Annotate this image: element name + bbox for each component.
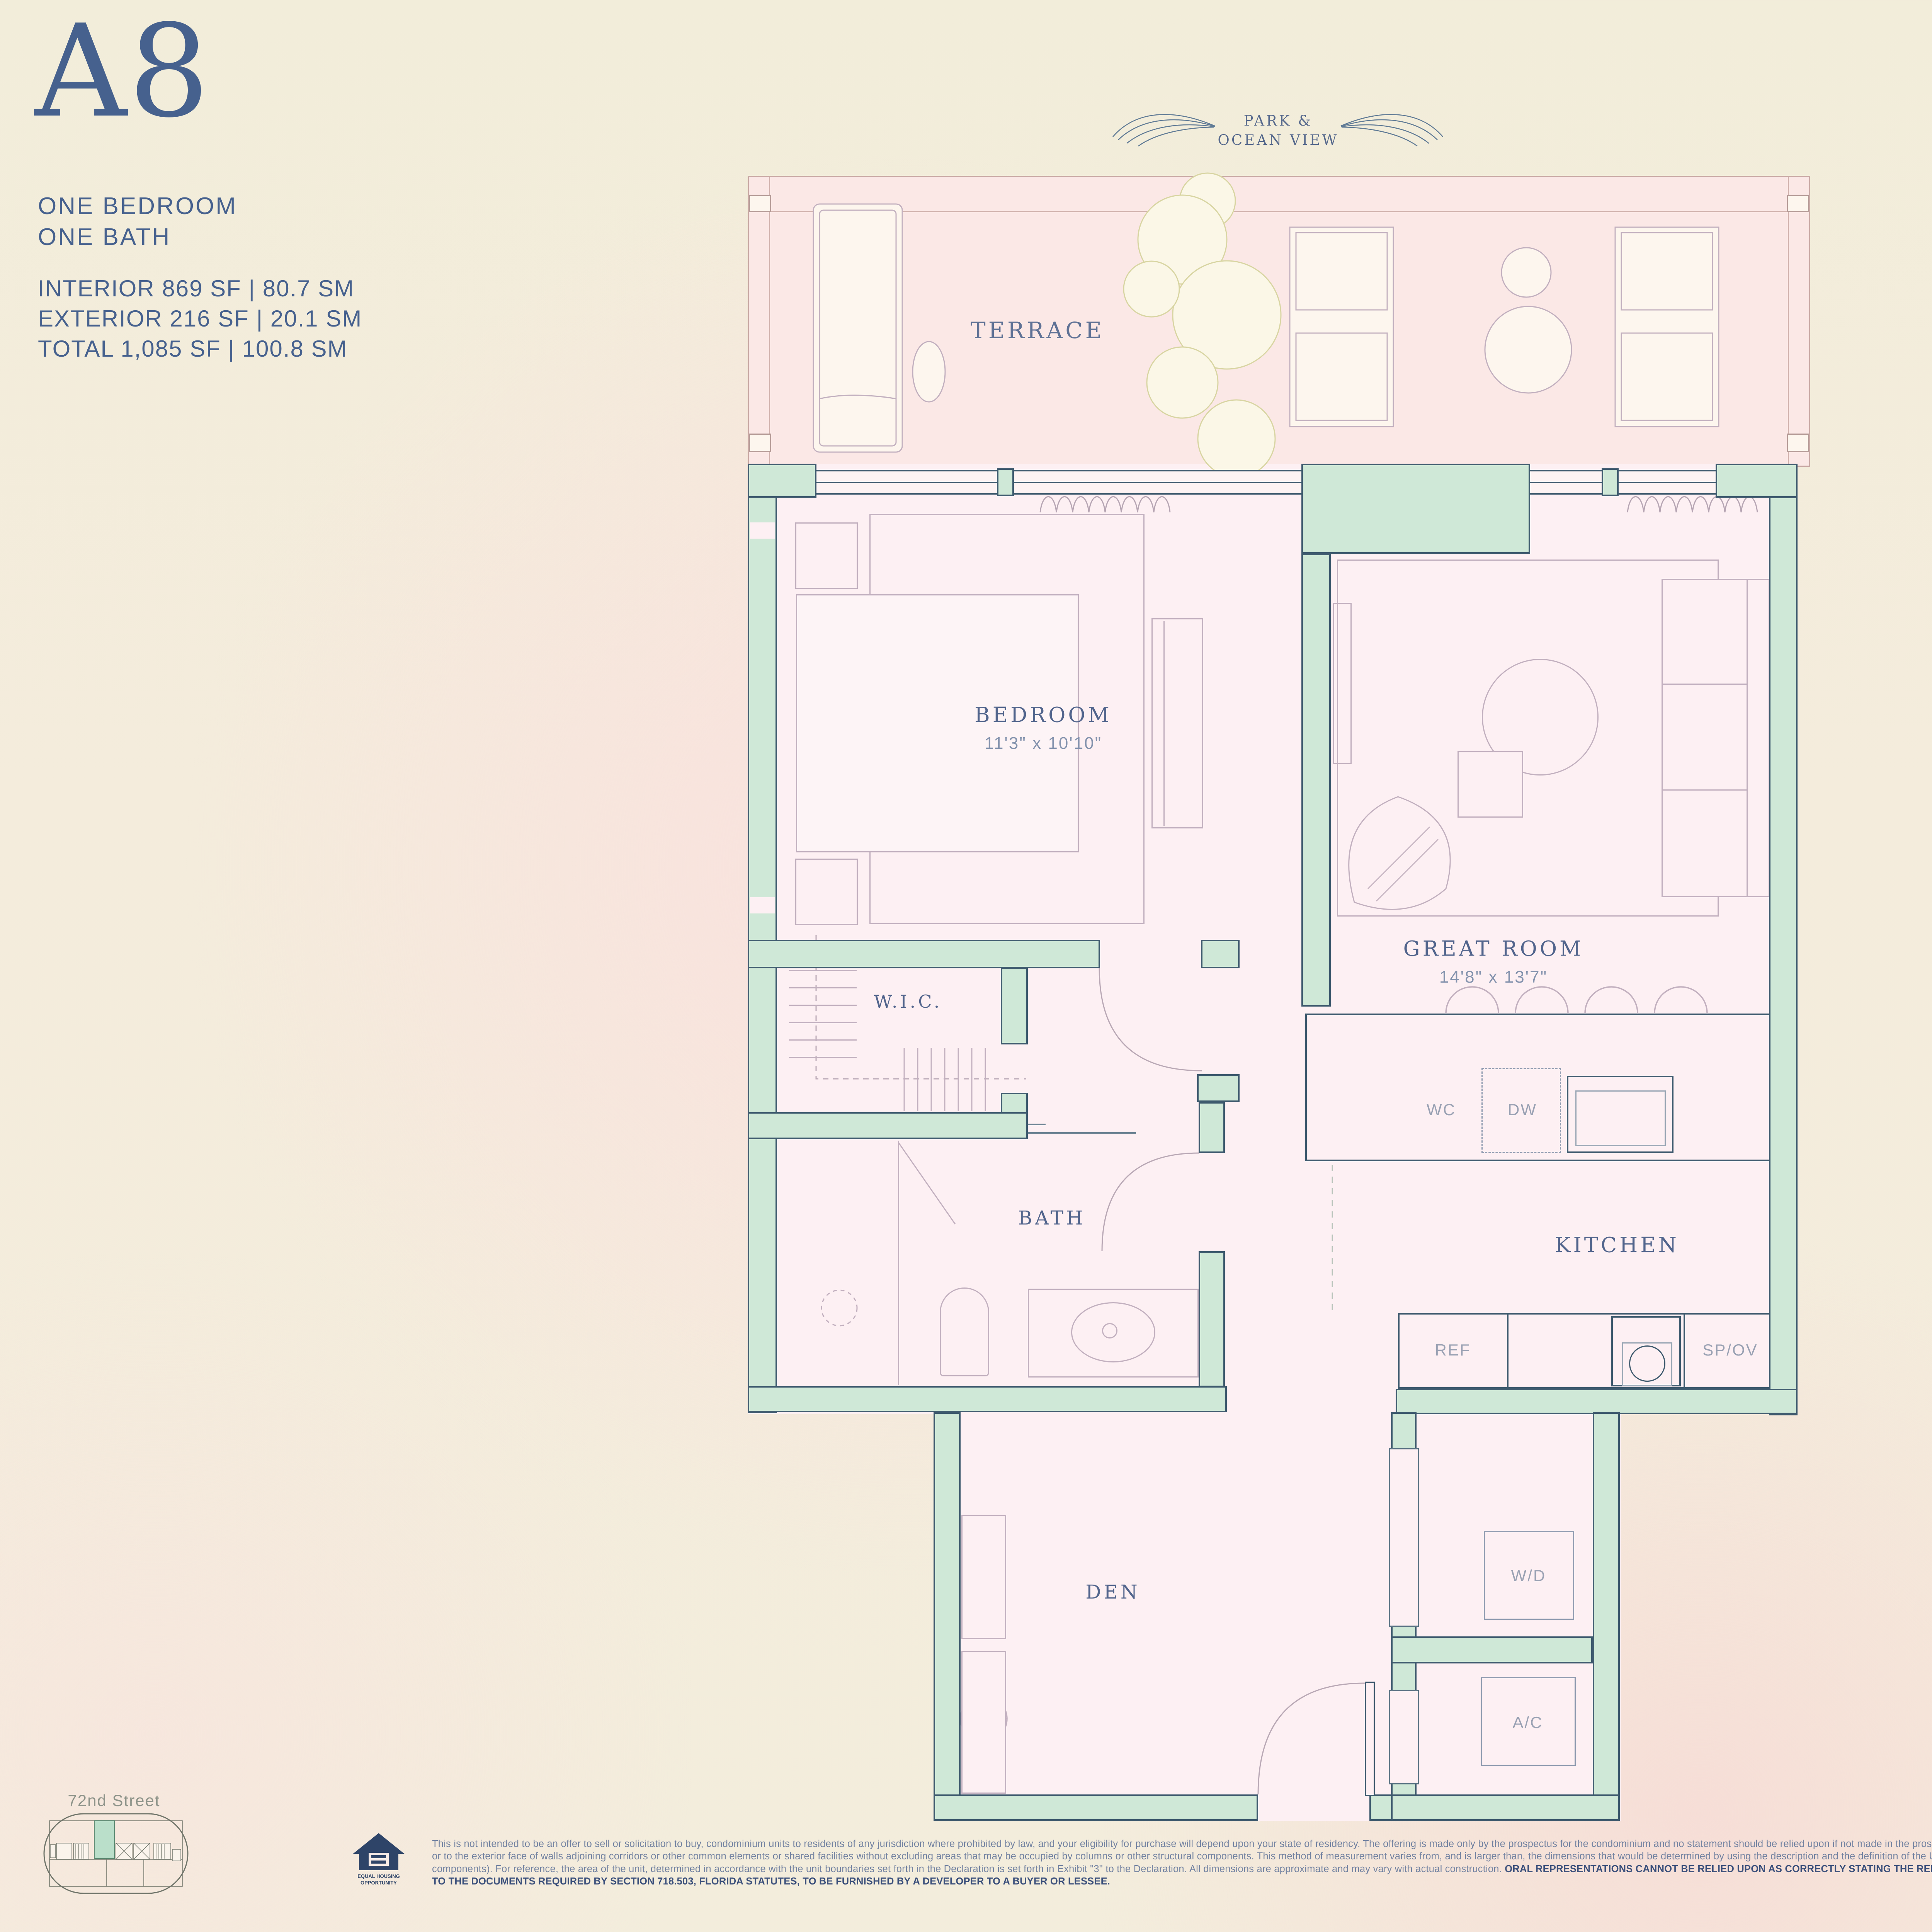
dishwasher-label: DW [1508,1100,1537,1119]
wall [934,1412,961,1821]
wall [934,1794,1258,1821]
cooktop [1611,1316,1681,1386]
entry-door-leaf [1365,1682,1375,1796]
wall [748,464,816,498]
window-mullion [1602,468,1619,496]
wall [1391,1794,1620,1821]
sofa [1662,579,1770,897]
window [1530,470,1716,495]
wine-cooler-label: WC [1427,1100,1456,1119]
bath-label: BATH [1018,1207,1085,1229]
dresser [1151,618,1203,828]
bedroom-label: BEDROOM [975,703,1112,727]
wall [1391,1636,1593,1663]
fridge-label: REF [1435,1341,1471,1359]
great-room-label: GREAT ROOM [1403,937,1584,961]
wall [748,1112,1028,1139]
wall [1301,554,1331,1007]
wall [1199,1251,1225,1387]
wall [1593,1412,1620,1821]
toilet [940,1287,989,1376]
wall [1769,497,1798,1415]
nightstand [795,522,858,589]
ac-closet-door [1389,1690,1419,1784]
den-label: DEN [1085,1581,1140,1603]
disclaimer: This is not intended to be an offer to s… [432,1838,1932,1888]
equal-housing-icon: EQUAL HOUSING OPPORTUNITY [350,1832,408,1889]
svg-text:EQUAL HOUSING: EQUAL HOUSING [357,1873,400,1879]
keyplan [43,1793,189,1897]
den-shelf [961,1515,1006,1639]
bedroom-dims: 11'3" x 10'10" [985,734,1102,753]
kitchen-label: KITCHEN [1555,1233,1679,1257]
bath-faucet [1102,1323,1117,1338]
great-room-dims: 14'8" x 13'7" [1439,968,1548,987]
wall [1301,464,1530,554]
wall [1199,1102,1225,1153]
wall [1201,940,1240,968]
terrace-label: TERRACE [971,317,1104,344]
wall [1396,1389,1798,1414]
wall [1716,464,1798,498]
wall [1001,967,1028,1044]
shower-divider [898,1141,899,1385]
wd-closet-door [1389,1448,1419,1627]
window [816,470,1301,495]
svg-text:OPPORTUNITY: OPPORTUNITY [361,1880,397,1886]
kitchen-sink [1567,1076,1673,1153]
wall [1369,1794,1394,1821]
washer-dryer-label: W/D [1511,1566,1546,1585]
ac-label: A/C [1512,1713,1543,1732]
wic-label: W.I.C. [874,991,942,1012]
den-shelf [961,1651,1006,1794]
nightstand [795,859,858,925]
speed-oven-label: SP/OV [1702,1341,1758,1359]
wall [748,1386,1227,1412]
wall [1197,1074,1240,1102]
coffee-table [1458,751,1523,818]
wall [748,940,1100,968]
window-mullion [997,468,1014,496]
